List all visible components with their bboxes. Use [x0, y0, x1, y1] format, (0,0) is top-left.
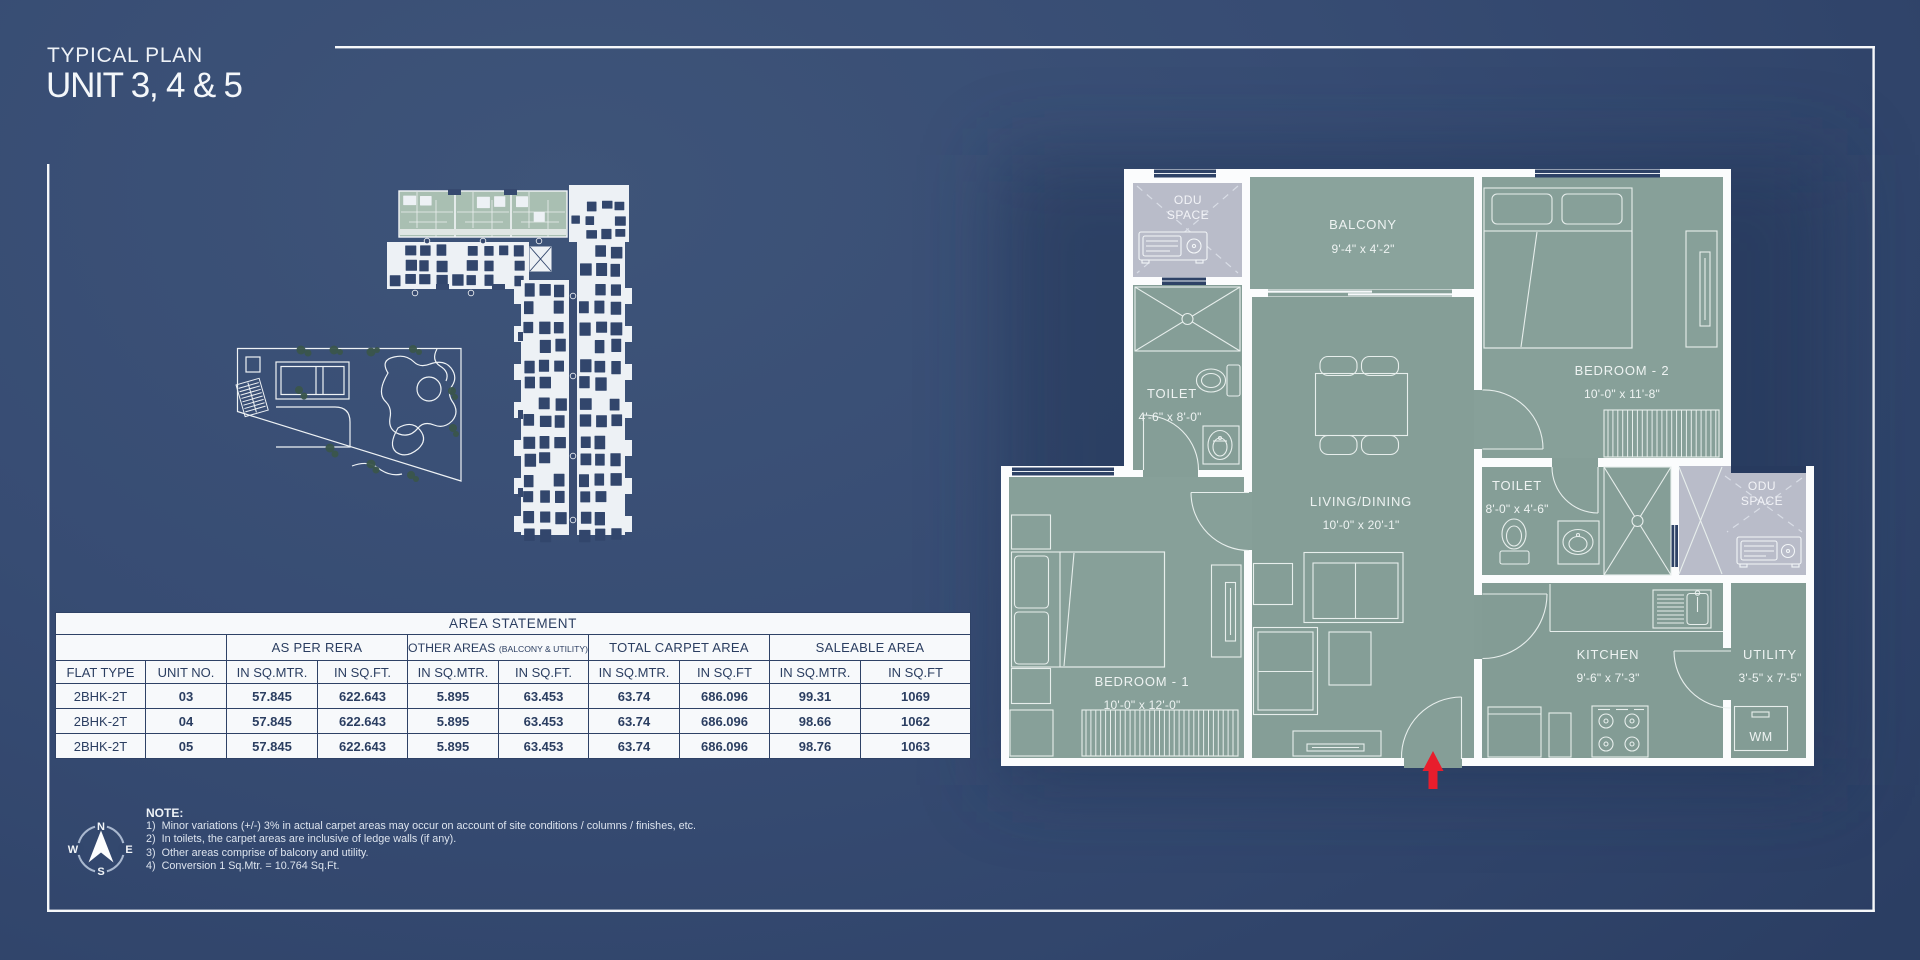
svg-text:9'-6" x 7'-3": 9'-6" x 7'-3" [1576, 671, 1639, 685]
svg-text:KITCHEN: KITCHEN [1577, 647, 1640, 662]
svg-text:10'-0" x 20'-1": 10'-0" x 20'-1" [1323, 518, 1400, 532]
svg-text:SPACE: SPACE [1167, 208, 1209, 222]
svg-text:TOILET: TOILET [1147, 386, 1197, 401]
svg-text:LIVING/DINING: LIVING/DINING [1310, 494, 1412, 509]
svg-text:10'-0" x 12'-0": 10'-0" x 12'-0" [1104, 698, 1181, 712]
svg-text:4'-6" x 8'-0": 4'-6" x 8'-0" [1138, 410, 1201, 424]
svg-text:SPACE: SPACE [1741, 494, 1783, 508]
svg-text:BEDROOM - 2: BEDROOM - 2 [1575, 363, 1670, 378]
svg-text:W: W [68, 844, 79, 856]
svg-text:TOILET: TOILET [1492, 478, 1542, 493]
svg-text:9'-4" x 4'-2": 9'-4" x 4'-2" [1331, 242, 1394, 256]
svg-text:BALCONY: BALCONY [1329, 217, 1397, 232]
svg-text:S: S [97, 866, 104, 878]
svg-text:BEDROOM - 1: BEDROOM - 1 [1095, 674, 1190, 689]
svg-text:ODU: ODU [1748, 479, 1776, 493]
svg-text:WM: WM [1749, 730, 1772, 744]
svg-text:8'-0" x 4'-6": 8'-0" x 4'-6" [1485, 502, 1548, 516]
svg-text:ODU: ODU [1174, 193, 1202, 207]
svg-text:N: N [97, 821, 105, 833]
svg-text:3'-5" x 7'-5": 3'-5" x 7'-5" [1738, 671, 1801, 685]
svg-text:E: E [125, 844, 132, 856]
svg-text:10'-0" x 11'-8": 10'-0" x 11'-8" [1584, 387, 1660, 401]
svg-text:UTILITY: UTILITY [1743, 647, 1797, 662]
